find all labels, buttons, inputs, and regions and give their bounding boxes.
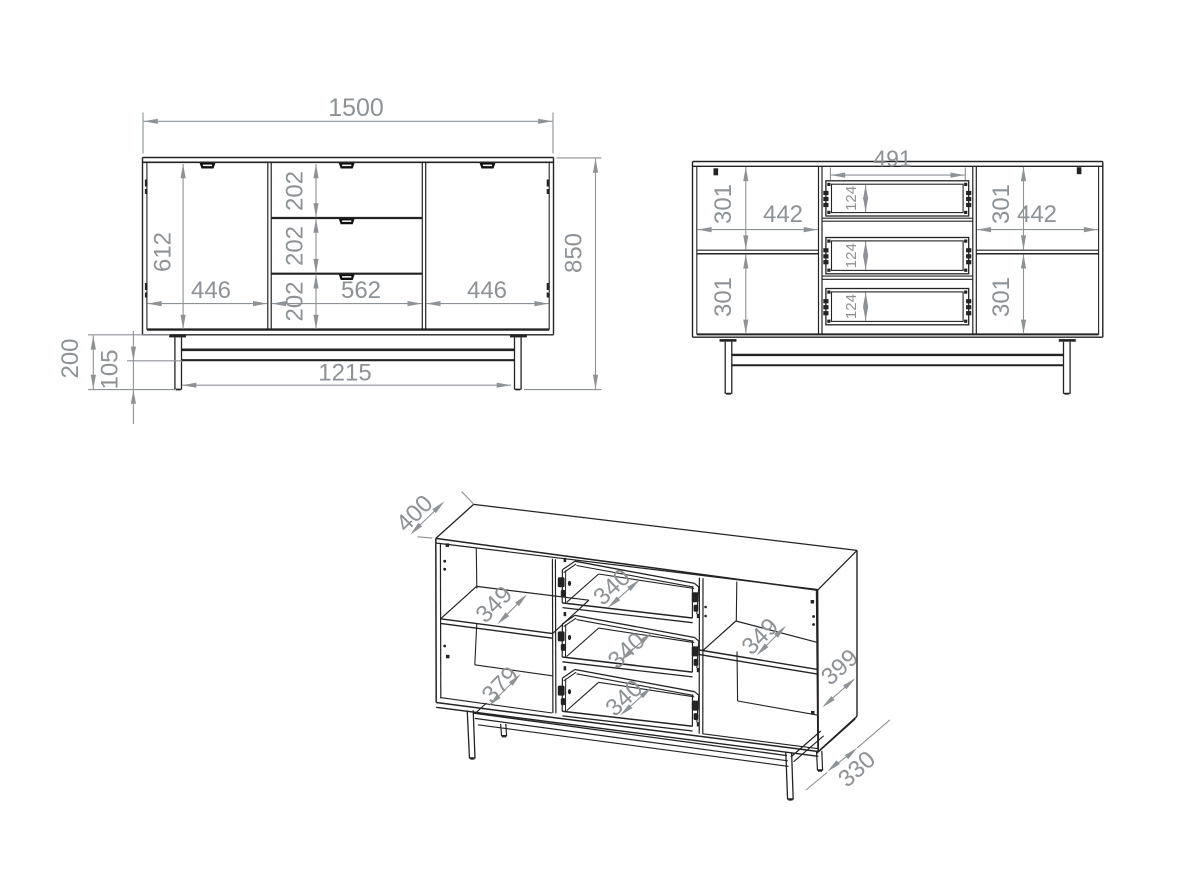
- svg-text:301: 301: [988, 184, 1015, 224]
- svg-text:1500: 1500: [328, 94, 384, 122]
- svg-text:442: 442: [763, 201, 803, 228]
- svg-text:301: 301: [710, 277, 737, 317]
- svg-text:124: 124: [843, 186, 860, 211]
- svg-text:562: 562: [341, 277, 381, 304]
- svg-text:301: 301: [988, 277, 1015, 317]
- svg-text:446: 446: [467, 277, 507, 304]
- svg-text:105: 105: [97, 349, 124, 389]
- svg-text:612: 612: [150, 232, 177, 272]
- svg-text:491: 491: [873, 146, 911, 172]
- svg-text:124: 124: [843, 294, 860, 319]
- svg-text:301: 301: [710, 184, 737, 224]
- svg-text:202: 202: [282, 171, 309, 211]
- svg-text:850: 850: [561, 233, 588, 273]
- svg-text:446: 446: [191, 277, 231, 304]
- svg-text:200: 200: [57, 338, 84, 378]
- svg-text:202: 202: [282, 226, 309, 266]
- svg-text:1215: 1215: [318, 360, 371, 387]
- svg-text:124: 124: [843, 243, 860, 268]
